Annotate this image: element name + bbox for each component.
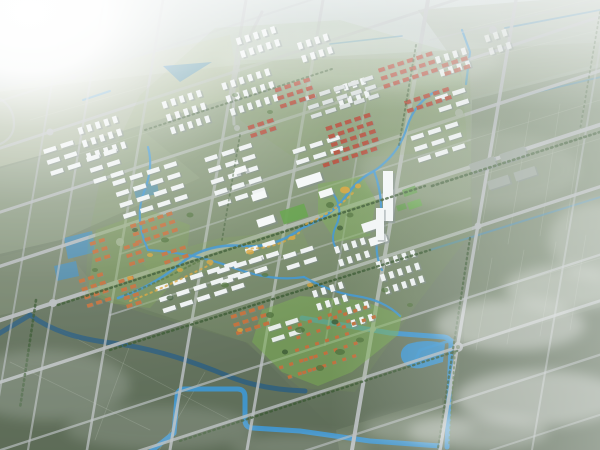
sun-glare — [0, 0, 600, 450]
masterplan-scene — [0, 0, 600, 450]
masterplan-aerial-rendering — [0, 0, 600, 450]
